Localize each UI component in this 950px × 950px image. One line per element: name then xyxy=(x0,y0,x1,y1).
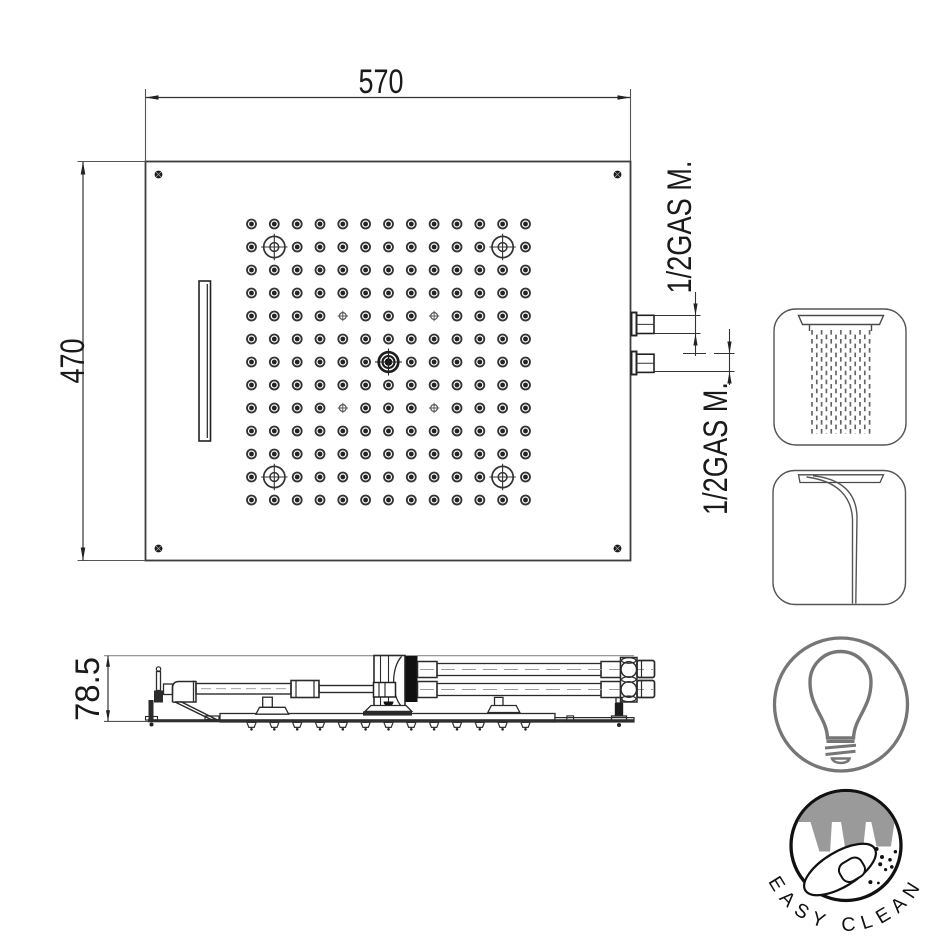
svg-text:78.5: 78.5 xyxy=(69,657,107,721)
svg-text:1/2GAS M.: 1/2GAS M. xyxy=(661,161,699,294)
svg-text:1/2GAS M.: 1/2GAS M. xyxy=(697,382,735,515)
svg-text:470: 470 xyxy=(54,339,92,384)
svg-text:570: 570 xyxy=(359,63,404,101)
